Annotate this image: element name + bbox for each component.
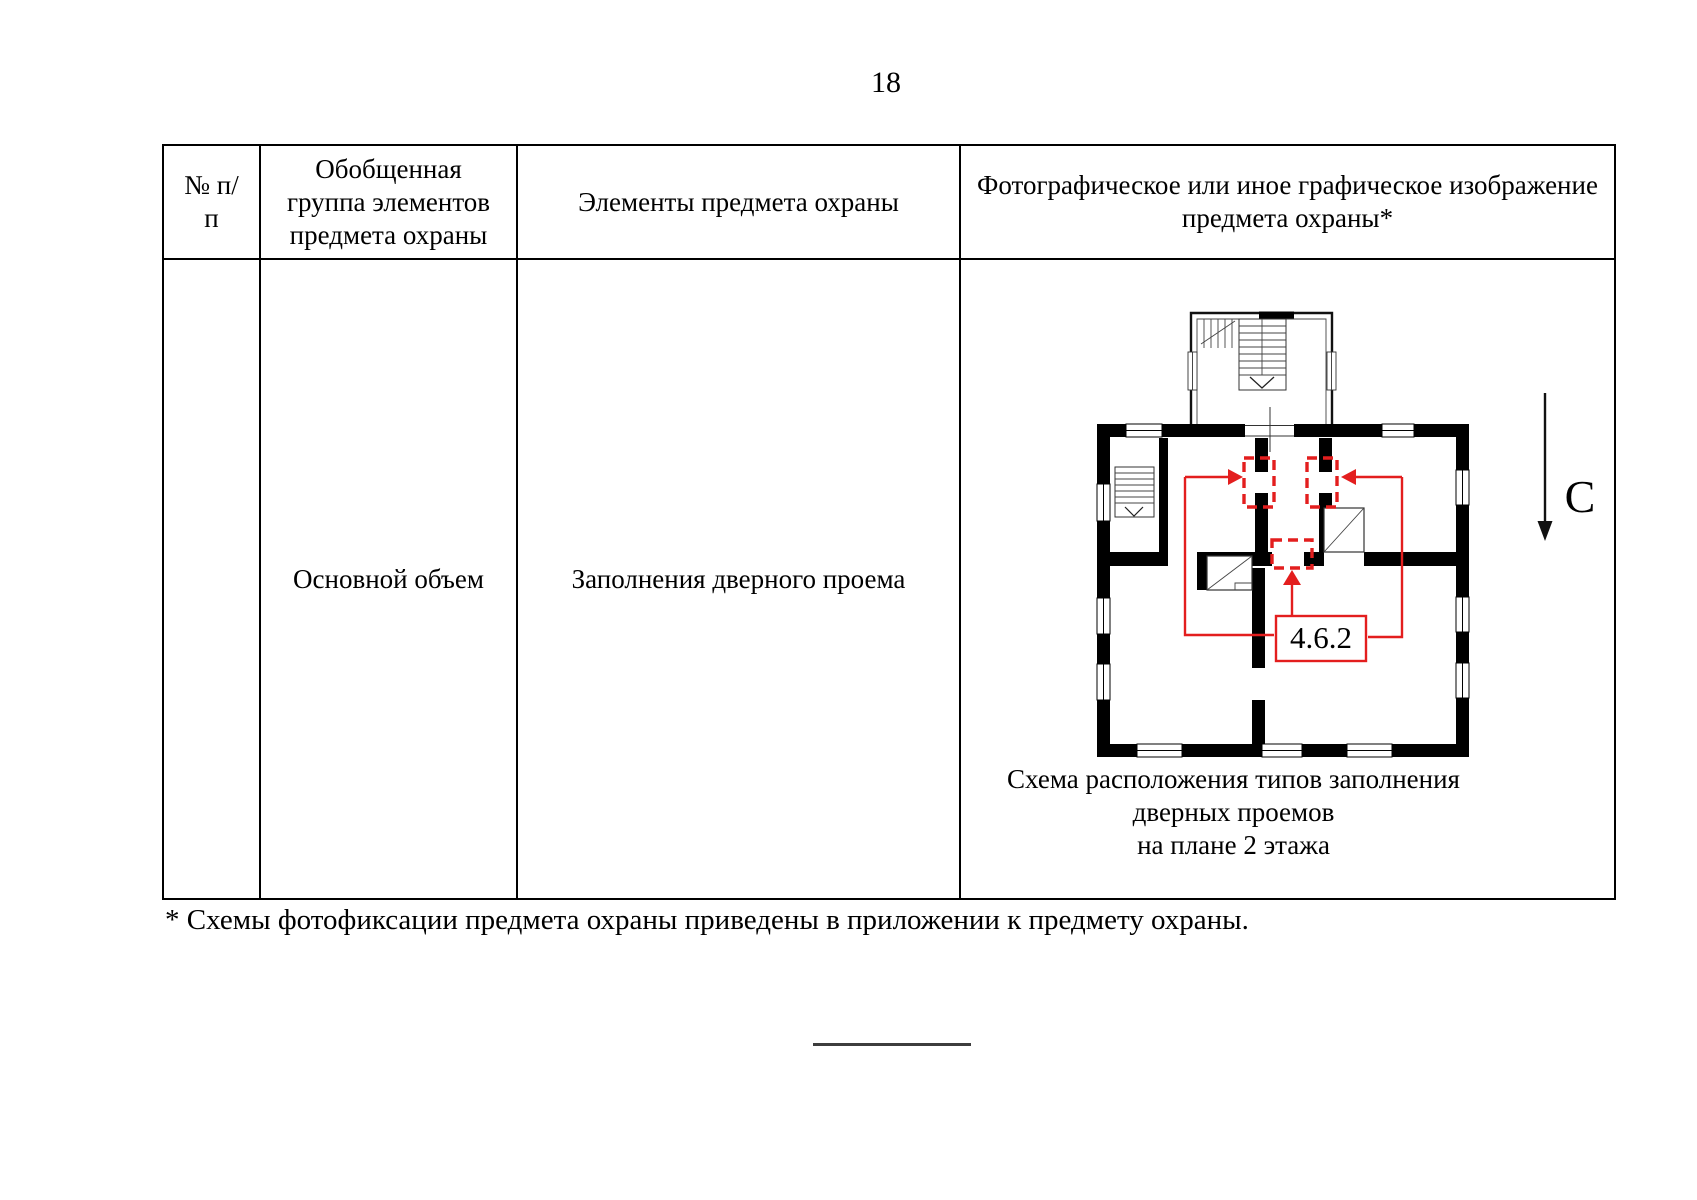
plan-label-box: 4.6.2 xyxy=(1276,616,1366,661)
stair-tower xyxy=(1188,312,1336,425)
north-arrow: С xyxy=(1538,393,1596,541)
footnote: * Схемы фотофиксации предмета охраны при… xyxy=(165,903,1585,937)
left-room-staircase xyxy=(1115,467,1154,517)
diagonal-square-left xyxy=(1207,556,1252,590)
plan-caption: Схема расположения типов заполнения двер… xyxy=(961,763,1506,862)
cell-plan-image: 4.6.2 С Схема расположения типов заполне… xyxy=(959,260,1614,898)
interior-walls xyxy=(1110,438,1456,744)
protection-subject-table: № п/п Обобщенная группа элементов предме… xyxy=(162,144,1616,900)
cell-group: Основной объем xyxy=(259,260,516,898)
door-annotations xyxy=(1185,458,1402,637)
diagonal-square-right xyxy=(1324,508,1364,552)
plan-caption-line1: Схема расположения типов заполнения двер… xyxy=(961,763,1506,829)
document-page: 18 № п/п Обобщенная группа элементов пре… xyxy=(0,0,1697,1200)
header-elements: Элементы предмета охраны xyxy=(516,146,959,260)
plan-caption-line2: на плане 2 этажа xyxy=(961,829,1506,862)
cell-num xyxy=(164,260,259,898)
cell-element: Заполнения дверного проема xyxy=(516,260,959,898)
tower-staircase xyxy=(1239,319,1286,390)
header-image: Фотографическое или иное графическое изо… xyxy=(959,146,1614,260)
outer-walls xyxy=(1097,407,1469,757)
arrowhead-right-icon xyxy=(1228,469,1243,485)
header-group: Обобщенная группа элементов предмета охр… xyxy=(259,146,516,260)
north-label: С xyxy=(1565,471,1596,522)
bottom-rule xyxy=(813,1043,971,1046)
arrowhead-up-icon xyxy=(1283,570,1301,585)
door-marker-left xyxy=(1244,458,1274,507)
page-number: 18 xyxy=(871,66,901,100)
arrowhead-left-icon xyxy=(1341,469,1356,485)
header-num: № п/п xyxy=(164,146,259,260)
winder-stair xyxy=(1201,319,1235,348)
plan-label-text: 4.6.2 xyxy=(1290,620,1352,655)
north-arrowhead-icon xyxy=(1538,521,1553,541)
